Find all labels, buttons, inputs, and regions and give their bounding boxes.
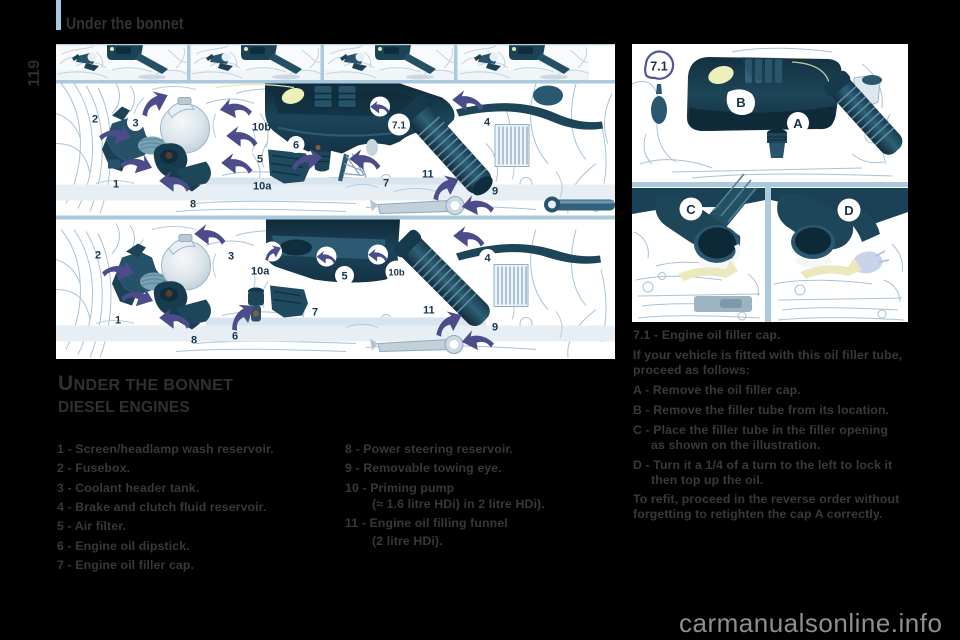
svg-text:3: 3 [132,118,138,130]
svg-text:11: 11 [422,169,434,181]
svg-text:D: D [844,203,853,218]
svg-text:A: A [793,116,803,131]
svg-text:7: 7 [383,178,389,190]
svg-text:7: 7 [312,307,318,319]
svg-text:10a: 10a [251,266,270,278]
svg-text:8: 8 [191,335,197,347]
svg-text:1: 1 [113,179,119,191]
svg-text:2: 2 [95,250,101,262]
svg-text:5: 5 [341,271,347,283]
svg-text:10b: 10b [388,268,405,279]
svg-text:4: 4 [484,253,491,265]
svg-text:7.1: 7.1 [650,60,667,74]
svg-text:C: C [686,202,696,217]
svg-text:7.1: 7.1 [392,121,406,132]
svg-text:5: 5 [257,154,263,166]
svg-text:10b: 10b [252,122,271,134]
svg-text:9: 9 [492,322,498,334]
svg-text:B: B [736,95,745,110]
svg-text:2: 2 [92,114,98,126]
svg-text:9: 9 [492,186,498,198]
svg-text:11: 11 [423,305,435,317]
svg-text:10a: 10a [253,181,272,193]
svg-text:1: 1 [115,315,121,327]
svg-text:6: 6 [232,331,238,343]
svg-text:3: 3 [228,251,234,263]
svg-text:6: 6 [293,140,299,152]
svg-text:4: 4 [484,117,491,129]
svg-text:8: 8 [190,199,196,211]
